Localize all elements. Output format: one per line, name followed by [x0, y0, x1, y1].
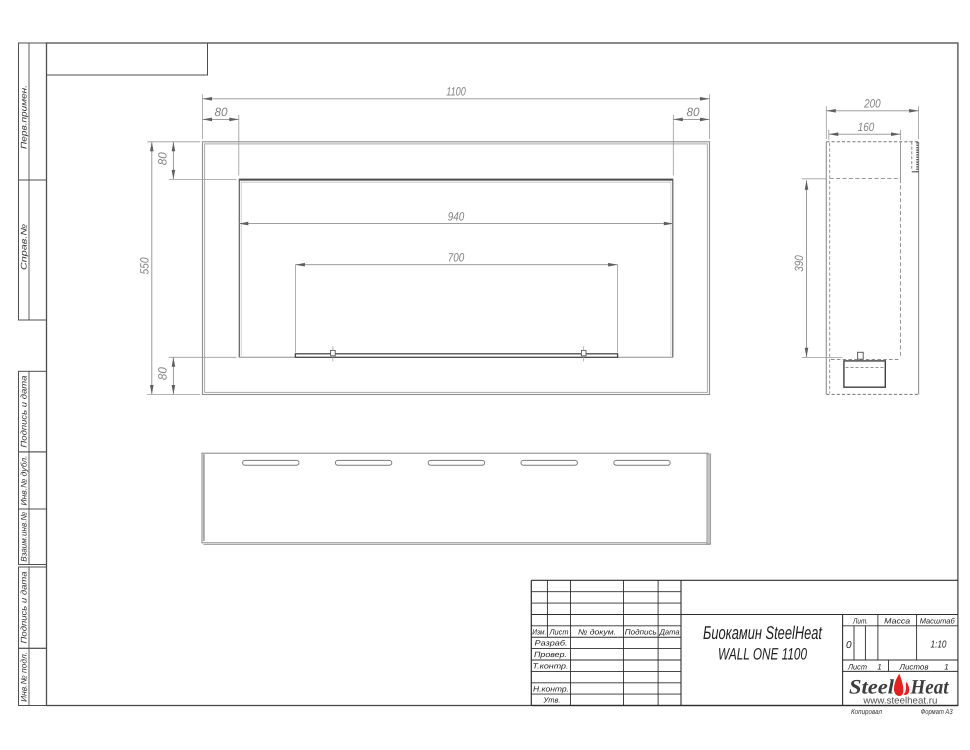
svg-text:Разраб.: Разраб. [535, 639, 568, 648]
svg-text:1100: 1100 [446, 85, 466, 99]
svg-text:Перв.примен.: Перв.примен. [20, 85, 29, 149]
svg-text:Лит.: Лит. [852, 616, 868, 625]
svg-text:Подпись и дата: Подпись и дата [20, 375, 29, 448]
svg-text:Подпись: Подпись [625, 627, 657, 636]
svg-text:Инв.№ подл.: Инв.№ подл. [20, 652, 29, 702]
svg-text:1: 1 [877, 662, 881, 671]
svg-text:0: 0 [846, 640, 852, 651]
svg-text:Лист: Лист [549, 627, 569, 636]
svg-text:1:10: 1:10 [931, 640, 947, 651]
svg-text:Инв.№ дубл.: Инв.№ дубл. [20, 456, 29, 506]
svg-text:Масштаб: Масштаб [920, 616, 956, 625]
svg-text:№ докум.: № докум. [578, 627, 616, 636]
svg-text:1: 1 [944, 662, 948, 671]
svg-text:Провер.: Провер. [534, 650, 567, 659]
svg-text:200: 200 [863, 97, 881, 111]
svg-text:Справ.№: Справ.№ [20, 224, 29, 270]
svg-text:390: 390 [792, 255, 806, 272]
svg-text:Изм.: Изм. [532, 627, 546, 636]
svg-text:Биокамин SteelHeat: Биокамин SteelHeat [703, 622, 823, 643]
svg-text:Листов: Листов [898, 662, 928, 671]
svg-text:160: 160 [858, 120, 875, 134]
svg-text:Т.контр.: Т.контр. [533, 662, 569, 671]
svg-text:700: 700 [448, 250, 465, 264]
svg-text:Утв.: Утв. [543, 696, 561, 705]
svg-text:80: 80 [155, 152, 169, 165]
svg-text:940: 940 [448, 209, 465, 223]
svg-text:Н.контр.: Н.контр. [533, 684, 569, 693]
svg-text:Формат А3: Формат А3 [921, 707, 953, 716]
svg-text:www.steelheat.ru: www.steelheat.ru [862, 696, 937, 707]
svg-text:80: 80 [215, 105, 228, 119]
svg-text:Подпись и дата: Подпись и дата [20, 571, 29, 644]
svg-text:WALL ONE 1100: WALL ONE 1100 [718, 645, 808, 663]
svg-text:Масса: Масса [884, 616, 910, 625]
svg-text:80: 80 [155, 367, 169, 380]
svg-text:Копировал: Копировал [851, 707, 882, 716]
svg-text:Лист: Лист [847, 662, 867, 671]
svg-text:Дата: Дата [659, 627, 680, 636]
svg-text:80: 80 [687, 105, 700, 119]
svg-text:550: 550 [138, 257, 152, 274]
svg-text:Взаим.инв.№: Взаим.инв.№ [20, 512, 29, 562]
